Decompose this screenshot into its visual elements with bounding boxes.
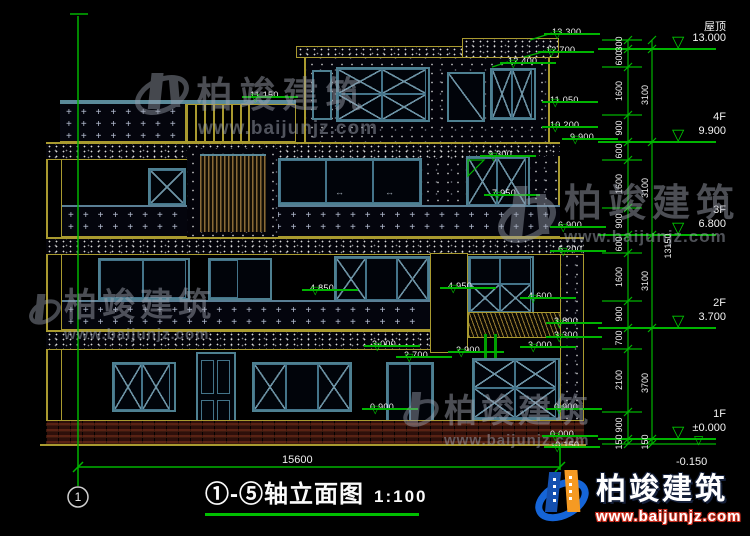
elevation-marker: 11.050▽: [550, 90, 600, 108]
elevation-marker: 7.950▽: [492, 183, 542, 201]
floor-name: 2F: [664, 297, 726, 309]
dim-value-minor: 1600: [614, 81, 624, 101]
elevation-marker: 4.600▽: [528, 286, 578, 304]
dim-value-major: 3100: [640, 85, 650, 105]
elevation-marker: 2.900▽: [456, 340, 506, 358]
elevation-marker: 12.400▽: [508, 51, 558, 69]
dim-value-major: 150: [640, 434, 650, 449]
floor-level-line: [598, 327, 716, 329]
floor-name: 3F: [664, 204, 726, 216]
dim-value-total: 13150: [663, 233, 673, 258]
dim-value-minor: 300: [614, 36, 624, 51]
dim-value-major: 3100: [640, 271, 650, 291]
floor-level-line: [598, 234, 716, 236]
floor-elevation: 3.700: [656, 311, 726, 323]
dim-value-minor: 900: [614, 213, 624, 228]
cad-canvas: { "drawing": { "title": "①-⑤轴立面图", "scal…: [0, 0, 750, 536]
dim-value-minor: 900: [614, 306, 624, 321]
elevation-marker: 6.900▽: [558, 215, 608, 233]
dim-value-minor: 1600: [614, 267, 624, 287]
dim-value-minor: 600: [614, 236, 624, 251]
dim-value-minor: 600: [614, 143, 624, 158]
elevation-marker: 0.900▽: [554, 397, 604, 415]
dim-value-minor: 150: [614, 434, 624, 449]
annotation-layer: 11.150▽13.300▽12.700▽12.400▽11.050▽10.20…: [0, 0, 750, 536]
elevation-marker: 4.850▽: [310, 278, 360, 296]
elevation-marker: 13.300▽: [552, 22, 602, 40]
dim-value-major: 3100: [640, 178, 650, 198]
floor-elevation: 13.000: [656, 32, 726, 44]
floor-elevation: 9.900: [656, 125, 726, 137]
dim-value-minor: 2100: [614, 370, 624, 390]
floor-name: 4F: [664, 111, 726, 123]
elevation-marker: -0.150▽: [552, 435, 602, 453]
brand-logo: 柏竣建筑 www.baijunjz.com: [534, 464, 741, 526]
overall-width-dim: 15600: [282, 454, 313, 466]
elevation-marker: 9.300▽: [488, 144, 538, 162]
brand-name: 柏竣建筑: [596, 464, 741, 508]
floor-level-marker: ▽: [694, 432, 703, 448]
dim-value-major: 3700: [640, 373, 650, 393]
dim-value-minor: 900: [614, 120, 624, 135]
drawing-title: ①-⑤轴立面图: [205, 481, 364, 508]
elevation-marker: 2.700▽: [404, 345, 454, 363]
dim-value-minor: 700: [614, 330, 624, 345]
title-underline: [205, 513, 419, 516]
floor-elevation: 6.800: [656, 218, 726, 230]
brand-url: www.baijunjz.com: [596, 508, 741, 525]
elevation-marker: 11.150▽: [250, 85, 300, 103]
brand-logo-icon: [534, 464, 590, 526]
dim-value-minor: 900: [614, 417, 624, 432]
elevation-marker: 4.950▽: [448, 276, 498, 294]
drawing-scale: 1:100: [374, 487, 427, 506]
floor-elevation: ±0.000: [656, 422, 726, 434]
elevation-marker: 6.200▽: [558, 239, 608, 257]
dim-value-minor: 600: [614, 50, 624, 65]
dim-value-minor: 1600: [614, 174, 624, 194]
floor-name: 1F: [664, 408, 726, 420]
elevation-marker: 0.900▽: [370, 397, 420, 415]
title-block: ①-⑤轴立面图1:100: [205, 474, 427, 516]
elevation-marker: 3.000▽: [528, 335, 578, 353]
elevation-marker: 9.900▽: [570, 127, 620, 145]
